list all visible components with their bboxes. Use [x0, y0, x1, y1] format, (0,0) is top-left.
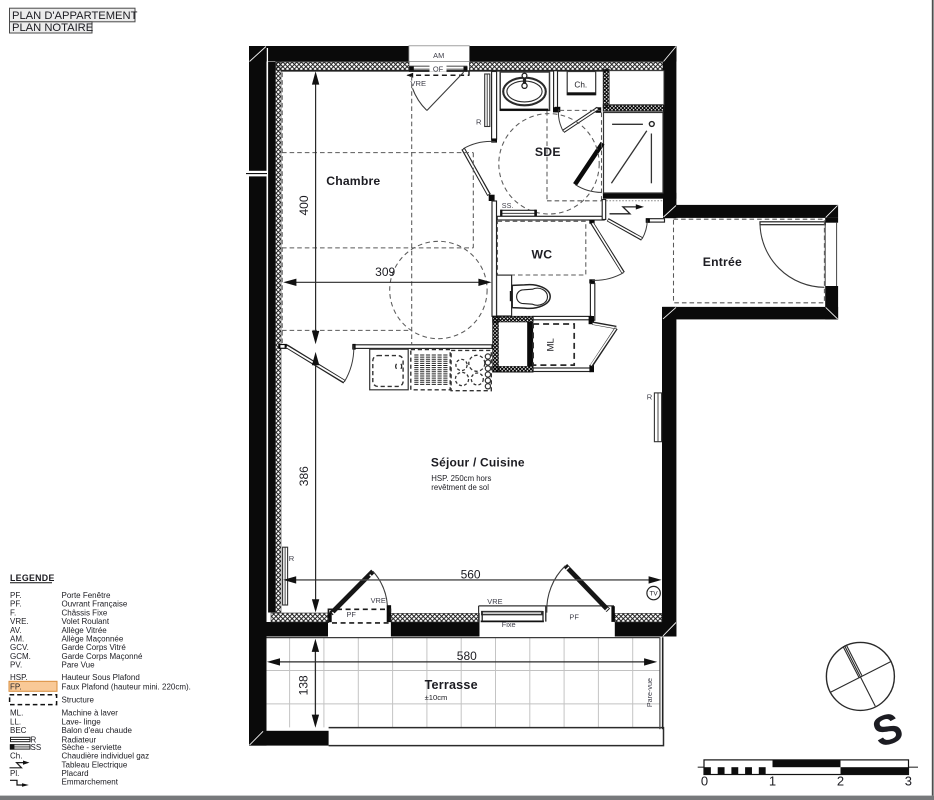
svg-text:SS.: SS.: [502, 201, 514, 210]
svg-text:FP.: FP.: [10, 682, 21, 691]
svg-text:Balon d'eau chaude: Balon d'eau chaude: [62, 726, 133, 735]
svg-text:138: 138: [297, 675, 311, 695]
svg-text:Fixe: Fixe: [502, 620, 516, 629]
svg-text:VRE.: VRE.: [10, 617, 29, 626]
svg-text:Châssis Fixe: Châssis Fixe: [62, 608, 108, 617]
svg-text:580: 580: [457, 649, 477, 663]
svg-text:R: R: [647, 393, 653, 402]
svg-text:PF.: PF.: [10, 600, 22, 609]
svg-text:PV.: PV.: [10, 661, 22, 670]
svg-text:PF.: PF.: [10, 591, 22, 600]
svg-text:PLAN D'APPARTEMENT: PLAN D'APPARTEMENT: [12, 10, 138, 22]
svg-text:Tableau Electrique: Tableau Electrique: [62, 760, 128, 769]
svg-text:±10cm: ±10cm: [425, 693, 448, 702]
svg-text:WC: WC: [531, 248, 552, 262]
svg-text:HSP. 250cm hors: HSP. 250cm hors: [431, 474, 491, 483]
svg-text:VRE: VRE: [371, 596, 386, 605]
svg-text:PF: PF: [347, 610, 357, 619]
svg-text:1: 1: [769, 773, 776, 788]
svg-text:Allège Vitrée: Allège Vitrée: [62, 626, 108, 635]
svg-text:Machine à laver: Machine à laver: [62, 709, 119, 718]
svg-text:0: 0: [701, 773, 708, 788]
svg-text:Séjour / Cuisine: Séjour / Cuisine: [431, 455, 525, 469]
svg-text:Structure: Structure: [62, 696, 95, 705]
svg-text:LEGENDE: LEGENDE: [10, 573, 55, 583]
svg-text:Garde Corps Vitré: Garde Corps Vitré: [62, 643, 127, 652]
svg-text:OF: OF: [433, 64, 444, 73]
svg-text:AM.: AM.: [10, 635, 24, 644]
svg-text:LL.: LL.: [10, 717, 21, 726]
svg-text:VRE: VRE: [487, 597, 502, 606]
svg-text:F.: F.: [10, 608, 16, 617]
svg-text:HSP.: HSP.: [10, 673, 28, 682]
svg-text:AV.: AV.: [10, 626, 22, 635]
svg-text:Terrasse: Terrasse: [425, 678, 478, 692]
svg-text:Pare Vue: Pare Vue: [62, 661, 96, 670]
svg-text:Placard: Placard: [62, 769, 89, 778]
svg-text:Volet Roulant: Volet Roulant: [62, 617, 110, 626]
svg-text:VRE: VRE: [410, 79, 426, 88]
svg-text:Ouvrant Française: Ouvrant Française: [62, 600, 128, 609]
svg-text:AM: AM: [433, 51, 444, 60]
svg-text:GCV.: GCV.: [10, 643, 29, 652]
svg-text:SDE: SDE: [535, 145, 561, 159]
svg-text:Entrée: Entrée: [703, 255, 742, 269]
svg-text:386: 386: [297, 466, 311, 486]
svg-text:Ch.: Ch.: [10, 752, 22, 761]
svg-text:3: 3: [905, 773, 912, 788]
svg-text:Porte Fenêtre: Porte Fenêtre: [62, 591, 111, 600]
svg-text:Ch.: Ch.: [574, 81, 587, 90]
svg-text:BEC: BEC: [10, 726, 27, 735]
svg-text:2: 2: [837, 773, 844, 788]
svg-text:PLAN NOTAIRE: PLAN NOTAIRE: [12, 22, 93, 34]
svg-text:400: 400: [297, 195, 311, 215]
svg-text:Chaudière individuel gaz: Chaudière individuel gaz: [62, 752, 150, 761]
svg-text:Garde Corps Maçonné: Garde Corps Maçonné: [62, 652, 143, 661]
svg-text:Faux Plafond (hauteur mini. 22: Faux Plafond (hauteur mini. 220cm).: [62, 682, 191, 691]
svg-text:Pl.: Pl.: [10, 769, 19, 778]
svg-text:Pare-vue: Pare-vue: [645, 678, 654, 707]
svg-text:Hauteur Sous Plafond: Hauteur Sous Plafond: [62, 673, 140, 682]
svg-text:PF: PF: [569, 612, 579, 621]
svg-text:Emmarchement: Emmarchement: [62, 778, 119, 787]
svg-text:560: 560: [461, 568, 481, 582]
svg-text:Sèche - serviette: Sèche - serviette: [62, 743, 123, 752]
svg-text:revêtment de sol: revêtment de sol: [431, 483, 489, 492]
svg-text:Lave- linge: Lave- linge: [62, 717, 102, 726]
svg-text:R: R: [476, 118, 482, 127]
svg-text:309: 309: [375, 265, 395, 279]
svg-text:ML: ML: [546, 337, 557, 351]
svg-text:R: R: [289, 554, 295, 563]
svg-text:ML.: ML.: [10, 709, 23, 718]
svg-text:S: S: [866, 703, 908, 757]
svg-text:SS: SS: [31, 743, 42, 752]
svg-text:GCM.: GCM.: [10, 652, 31, 661]
svg-text:Allège Maçonnée: Allège Maçonnée: [62, 635, 124, 644]
svg-text:TV: TV: [650, 591, 659, 598]
svg-text:Chambre: Chambre: [326, 174, 380, 188]
